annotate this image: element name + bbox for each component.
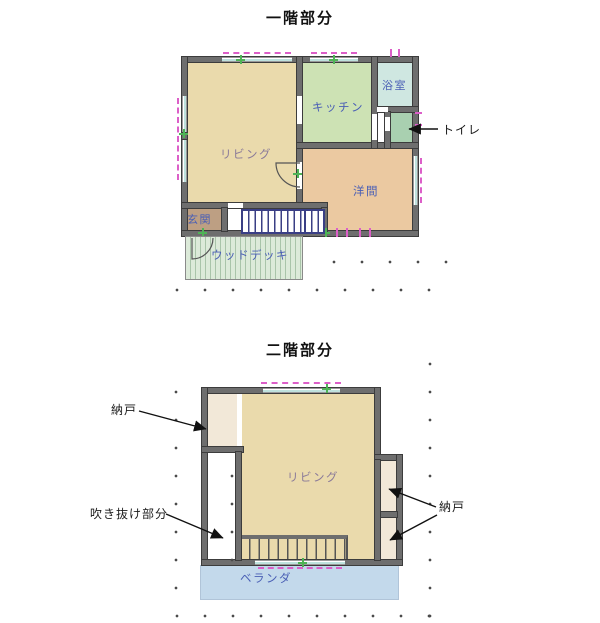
- window-tick: [293, 169, 302, 178]
- grid-dots: [320, 256, 450, 268]
- annotation-void: 吹き抜け部分: [90, 505, 168, 522]
- curtain-line: [177, 98, 179, 180]
- wall-segment: [202, 388, 207, 565]
- door-opening: [228, 203, 243, 208]
- door-opening: [377, 107, 388, 112]
- storage-top-left: [207, 393, 237, 447]
- room-label-veranda: ベランダ: [240, 570, 292, 586]
- annotation-storage-right: 納戸: [439, 498, 465, 515]
- curtain-line: [223, 52, 291, 54]
- stairs-1f-upper-run: [304, 209, 325, 234]
- grid-dots: [170, 378, 182, 608]
- window-tick: [236, 55, 245, 64]
- curtain-line: [420, 158, 422, 203]
- window-glass: [415, 156, 417, 205]
- window-glass: [222, 59, 292, 61]
- room-label-western: 洋間: [353, 183, 379, 199]
- wall-segment: [375, 460, 380, 560]
- storage-right-lower: [381, 517, 397, 560]
- room-label-entrance: 玄関: [187, 211, 212, 227]
- room-label-living-2f: リビング: [287, 469, 339, 485]
- vent-window-symbol: [390, 49, 400, 57]
- storage-right-upper: [381, 460, 397, 512]
- floor-plan-page: 一階部分: [0, 0, 600, 623]
- room-label-bath: 浴室: [382, 77, 407, 93]
- door-opening: [372, 114, 377, 140]
- room-label-wood-deck: ウッドデッキ: [211, 247, 289, 263]
- wall-segment: [222, 208, 227, 231]
- floor1-title: 一階部分: [0, 7, 600, 28]
- grid-dots: [226, 462, 238, 574]
- curtain-line: [311, 52, 357, 54]
- window-glass: [184, 96, 186, 182]
- room-living-1f: [187, 62, 297, 203]
- stairs-2f: [241, 535, 348, 560]
- annotation-toilet: トイレ: [442, 121, 481, 138]
- window-tick: [329, 55, 338, 64]
- wall-segment: [397, 455, 402, 565]
- room-toilet: [390, 112, 413, 143]
- room-label-living-1f: リビング: [220, 146, 272, 162]
- door-opening: [297, 96, 302, 124]
- curtain-line: [258, 567, 342, 569]
- window-tick: [179, 129, 188, 138]
- door-opening: [385, 117, 390, 131]
- room-label-kitchen: キッチン: [312, 99, 364, 115]
- grid-dots: [163, 284, 453, 296]
- window-tick: [322, 384, 331, 393]
- floor2-title: 二階部分: [0, 339, 600, 360]
- stairs-1f: [241, 209, 306, 234]
- wall-segment: [375, 388, 380, 460]
- vent-window-symbol: [415, 112, 422, 126]
- window-tick: [298, 558, 307, 567]
- wall-segment: [297, 143, 418, 148]
- sliding-door-symbol: [359, 228, 371, 237]
- grid-dots: [163, 610, 453, 622]
- annotation-storage-left: 納戸: [111, 401, 137, 418]
- grid-dots: [424, 350, 436, 623]
- sliding-door-symbol: [336, 228, 348, 237]
- wall-segment: [182, 203, 327, 208]
